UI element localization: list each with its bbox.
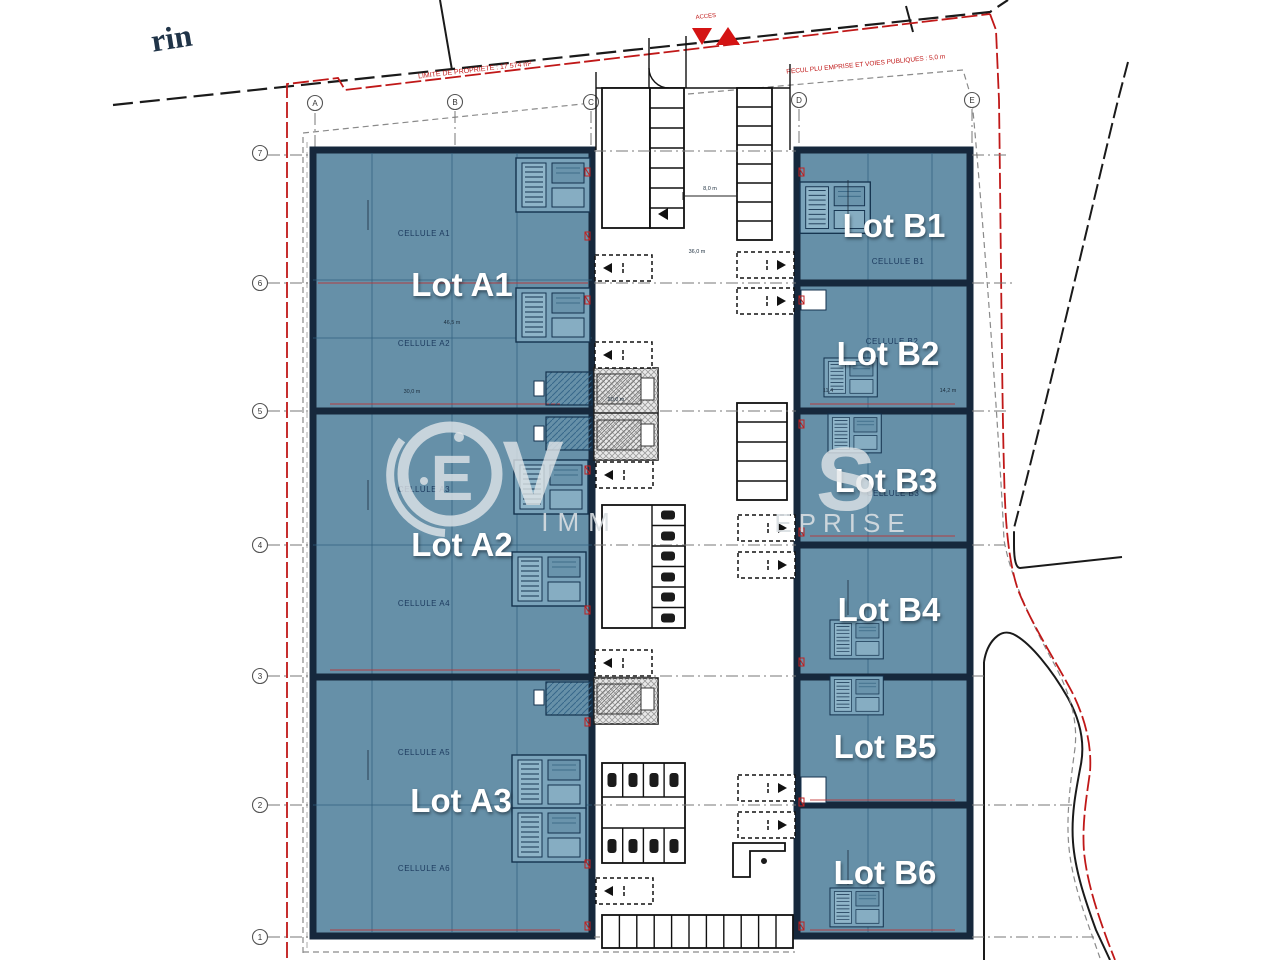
dim-8-0: 8,0 m — [703, 186, 717, 192]
grid-row-3: 3 — [258, 672, 263, 681]
access-label: ACCES — [695, 13, 716, 21]
dim-30-0: 30,0 m — [404, 389, 421, 395]
lot-a1-label: Lot A1 — [411, 266, 512, 303]
lot-b5-label: Lot B5 — [834, 728, 937, 765]
site-plan-page: ACCES LIMITE DE PROPRIETE : 17 574 m² RE… — [0, 0, 1280, 960]
lot-b2-label: Lot B2 — [837, 335, 940, 372]
lot-b1-label: Lot B1 — [843, 207, 946, 244]
grid-row-6: 6 — [258, 279, 263, 288]
dim-36-0: 36,0 m — [689, 249, 706, 255]
grid-col-a: A — [312, 99, 318, 108]
grid-row-7: 7 — [258, 149, 263, 158]
lot-a3-label: Lot A3 — [410, 782, 511, 819]
street-edge-line — [113, 0, 1008, 105]
lot-b6-label: Lot B6 — [834, 854, 937, 891]
watermark-letter-e: E — [431, 442, 474, 514]
street-name-fragment: rin — [148, 17, 194, 59]
cell-a1-label: CELLULE A1 — [398, 229, 450, 238]
watermark-sub-right: EPRISE — [774, 508, 911, 538]
access-arrow-up-icon — [716, 27, 740, 45]
dim-20-0: 20,0 m — [608, 397, 625, 403]
grid-col-b: B — [452, 98, 457, 107]
grid-row-1: 1 — [258, 933, 263, 942]
site-plan-svg: ACCES LIMITE DE PROPRIETE : 17 574 m² RE… — [0, 0, 1280, 960]
l-wall — [733, 843, 785, 877]
grid-row-5: 5 — [258, 407, 263, 416]
cell-a2-label: CELLULE A2 — [398, 339, 450, 348]
dim-46-5: 46,5 m — [444, 320, 461, 326]
right-road-curve — [984, 633, 1110, 960]
dim-11-4: 11,4 — [823, 388, 833, 394]
setback-label: RECUL PLU EMPRISE ET VOIES PUBLIQUES : 5… — [786, 53, 946, 75]
grid-row-4: 4 — [258, 541, 263, 550]
cell-a6-label: CELLULE A6 — [398, 864, 450, 873]
grid-col-c: C — [588, 98, 594, 107]
right-road-edge — [1014, 62, 1128, 545]
parcel-stub-line — [906, 6, 913, 32]
cell-b1-label: CELLULE B1 — [872, 257, 925, 266]
grid-row-2: 2 — [258, 801, 263, 810]
block-b: CELLULE B1 CELLULE B2 CELLULE B3 11,4 14… — [797, 150, 970, 936]
grid-row-markers: 7 6 5 4 3 2 1 — [253, 146, 268, 945]
dim-14-2: 14,2 m — [940, 388, 957, 394]
right-road-branch — [1014, 545, 1122, 568]
watermark-sub-left: IMM — [541, 507, 619, 537]
grid-col-e: E — [969, 96, 974, 105]
property-boundary-red-right — [990, 14, 1115, 960]
grid-col-d: D — [796, 96, 802, 105]
cell-a4-label: CELLULE A4 — [398, 599, 450, 608]
parcel-stub-line — [440, 0, 452, 70]
cell-a5-label: CELLULE A5 — [398, 748, 450, 757]
lot-b4-label: Lot B4 — [838, 591, 941, 628]
